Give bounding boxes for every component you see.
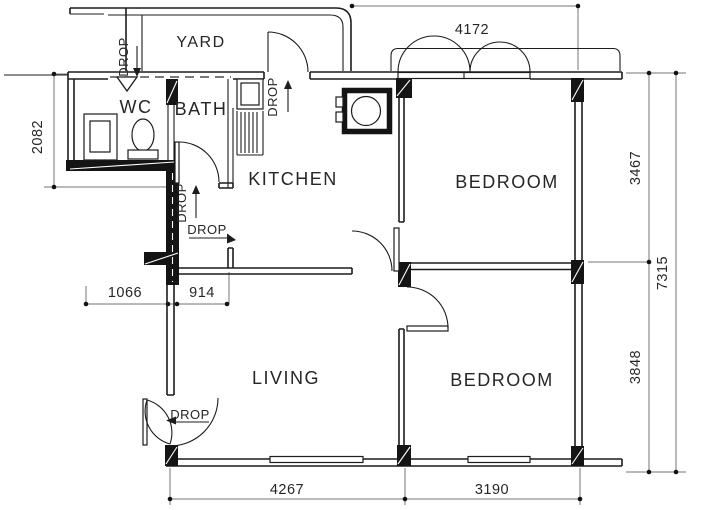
room-label-bedroom-bottom: BEDROOM [450,370,554,390]
yard-door-swing-arc-icon [268,32,308,72]
dim-bottom-right: 3190 [475,482,509,498]
casement-window-arc-icon [470,42,500,72]
kitchen-door-swing-arc-icon [352,231,392,271]
dim-top-width: 4172 [455,22,489,38]
windows [270,36,620,463]
dim-left-height: 2082 [30,120,46,154]
dim-wc-width: 1066 [108,285,142,301]
drop-label-service-yard: DROP [265,77,280,117]
bath-door-leaf [175,142,179,183]
toilet-cistern [128,150,158,159]
arrow-right-icon [227,234,236,244]
floor-trap-triangle-icon [117,77,137,91]
window-swing-envelope [391,49,620,72]
toilet-icon [132,119,154,151]
room-label-yard: YARD [176,34,225,51]
dim-bottom-left: 4267 [270,482,304,498]
floor-plan-canvas: YARD WC BATH KITCHEN BEDROOM LIVING BEDR… [0,0,717,510]
dim-right-lower: 3848 [628,350,644,384]
arrow-up-icon [284,80,292,89]
drop-label-wc: DROP [116,37,131,77]
fixtures [84,77,390,160]
room-label-kitchen: KITCHEN [248,169,338,189]
drop-label-entrance: DROP [170,407,210,422]
drop-label-kitchen-passage: DROP [187,222,227,237]
floor-plan-page: YARD WC BATH KITCHEN BEDROOM LIVING BEDR… [0,0,717,510]
dim-passage-width: 914 [189,285,215,301]
kitchen-door-leaf [394,228,399,271]
drop-label-bath: DROP [174,183,189,223]
dim-right-upper: 3467 [628,151,644,185]
bedroom-door-leaf [407,326,448,331]
bath-door-swing-arc-icon [179,142,219,182]
entrance-gate-swing-icon [145,400,172,444]
room-label-bedroom-top: BEDROOM [455,172,559,192]
casement-window-arc-icon [500,42,530,72]
bedroom-window-frame [468,457,530,463]
room-label-living: LIVING [252,368,320,388]
sink-drying-rack-icon [237,111,263,155]
room-label-wc: WC [120,97,153,117]
arrow-up-icon [192,185,200,194]
casement-window-arc-icon [398,36,434,72]
bedroom-door-swing-arc-icon [407,287,448,328]
room-label-bath: BATH [175,99,228,119]
living-window-frame [270,457,363,463]
casement-window-arc-icon [434,36,470,72]
dim-right-total: 7315 [655,256,671,290]
